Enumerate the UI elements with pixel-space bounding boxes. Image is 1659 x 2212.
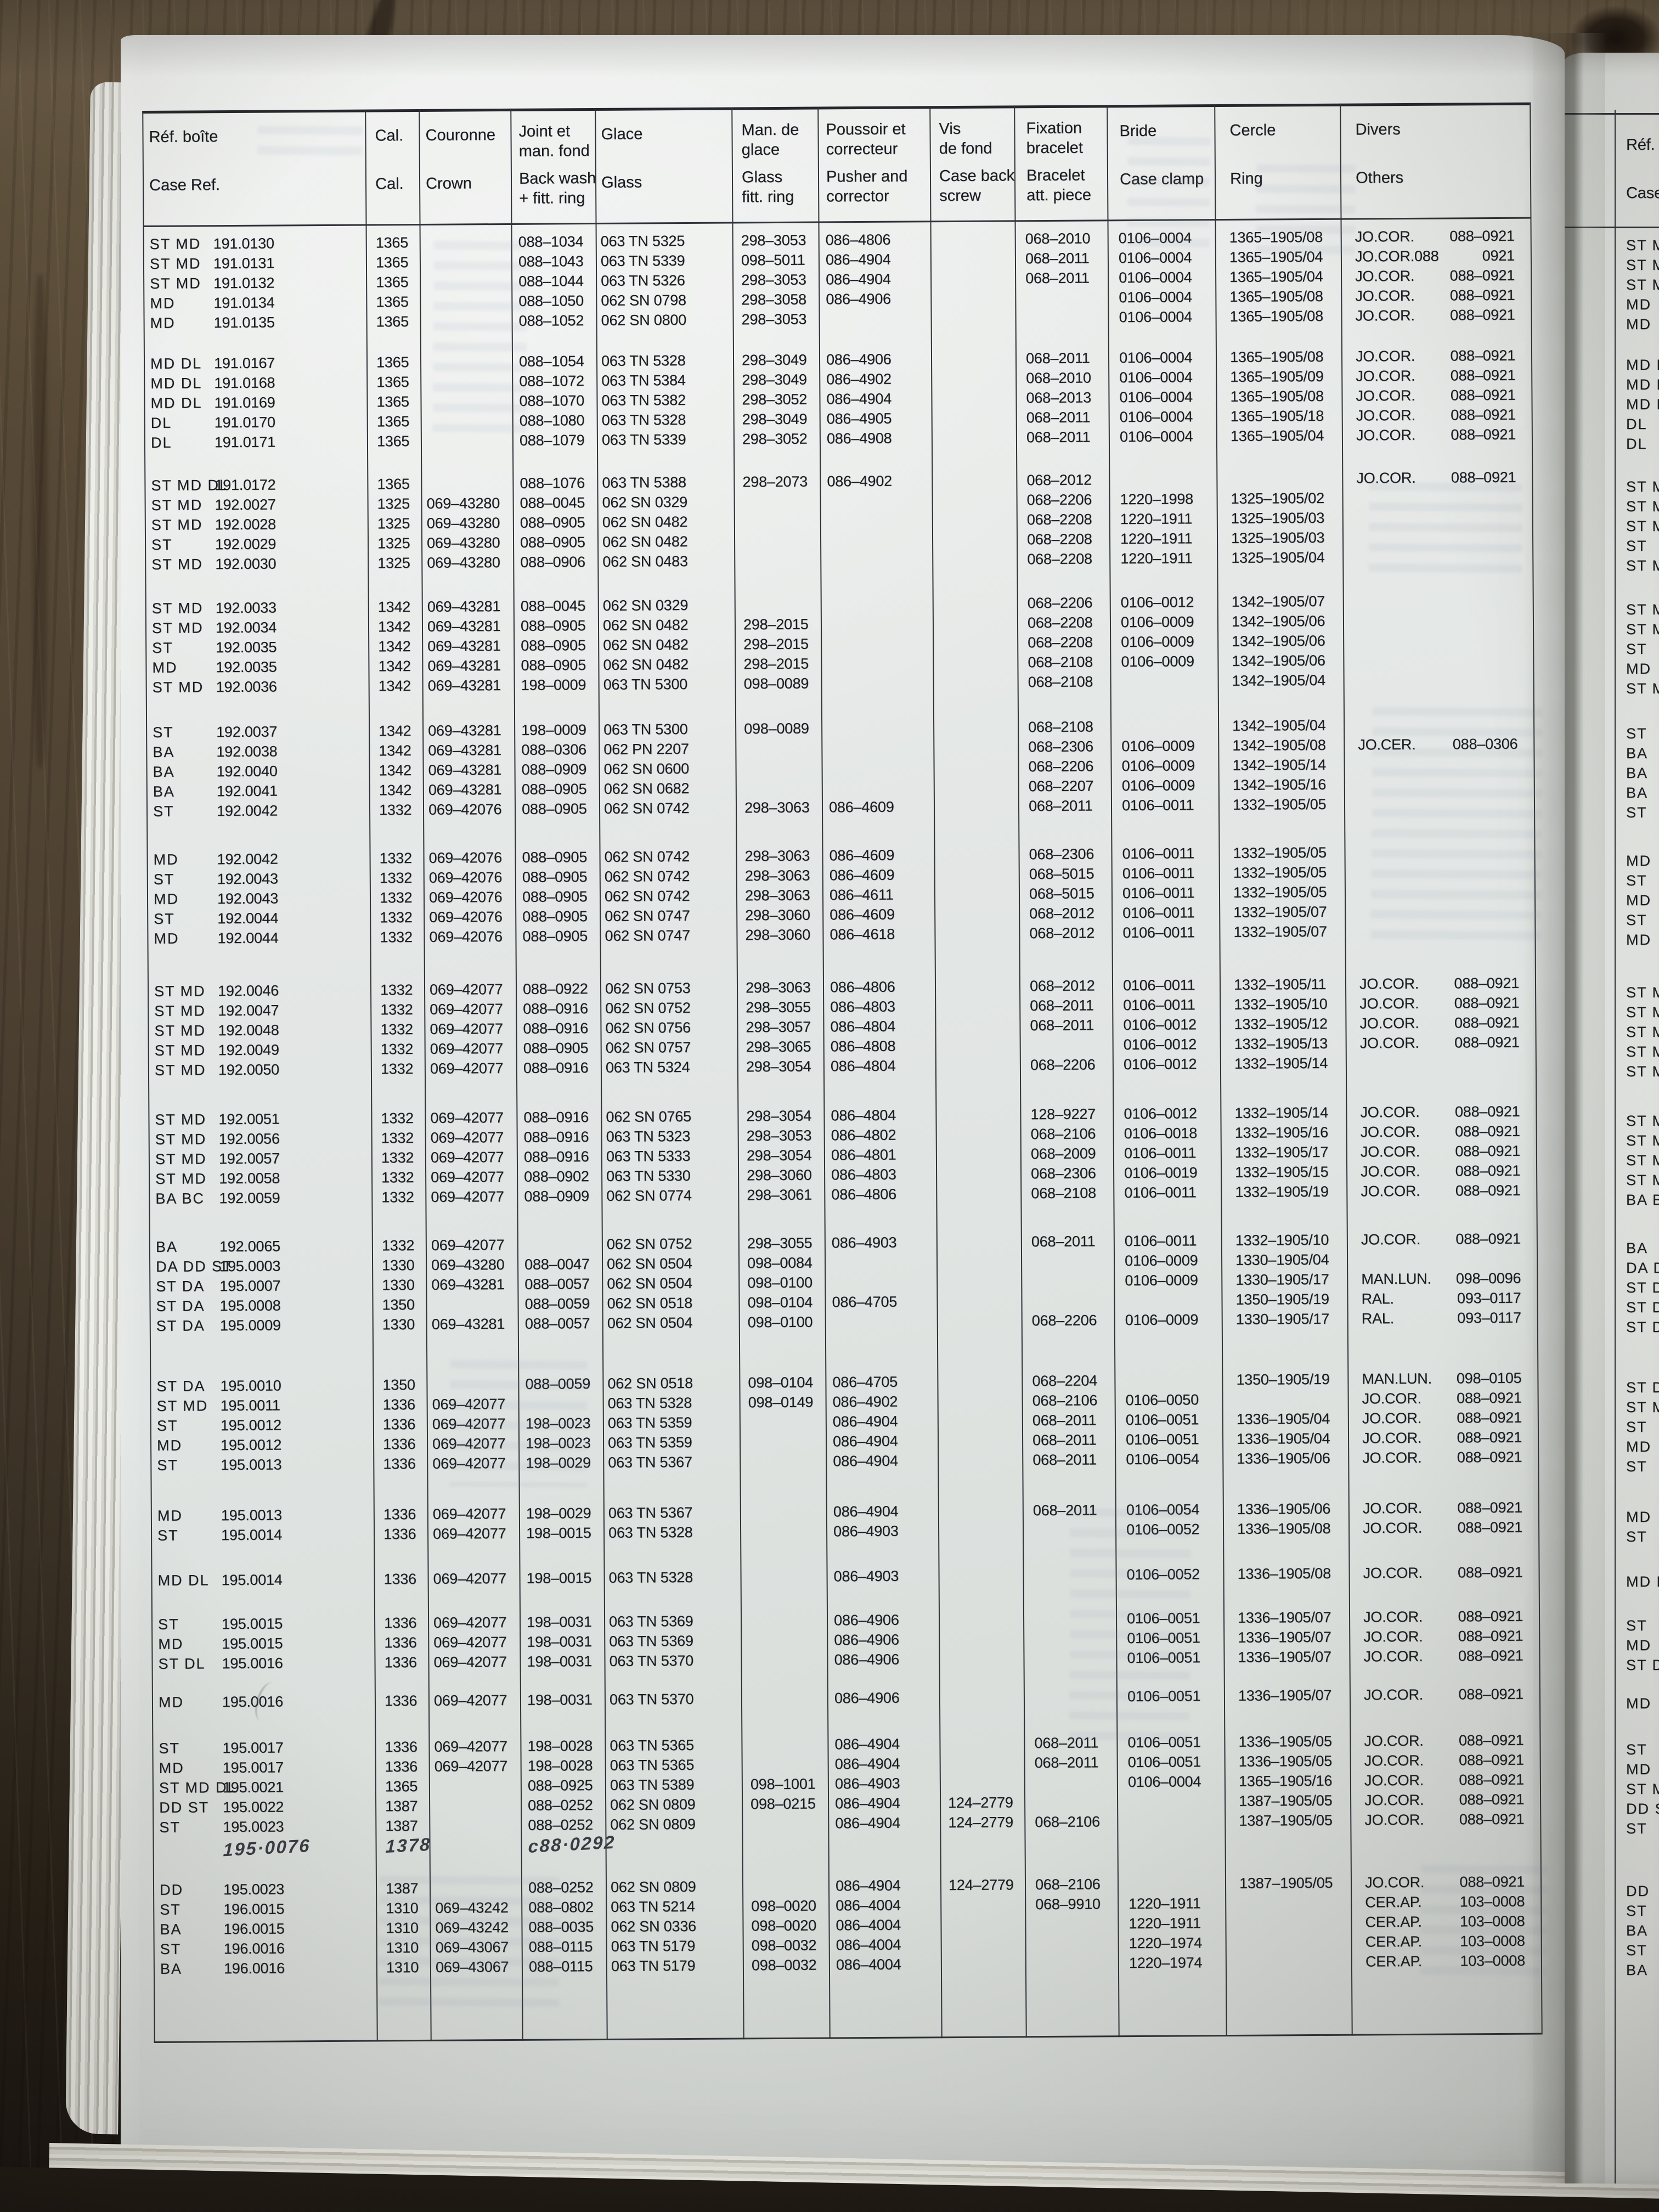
- row-group: MD DL191.01671365088–1054063 TN 5328298–…: [144, 346, 1532, 453]
- cell-cal: 1310: [386, 1957, 428, 1977]
- cell-backwash-ring: 088–0905: [522, 799, 597, 819]
- cell-backwash-ring: 198–0023: [526, 1413, 601, 1434]
- cell-glass: 063 TN 5370: [609, 1650, 738, 1671]
- cell-case-clamp: 0106–0012: [1121, 592, 1215, 612]
- next-page-row: ST MD: [1565, 600, 1659, 619]
- cell-cal: 1342: [378, 636, 420, 656]
- cell-case-ref: 191.0172: [215, 475, 363, 495]
- cell-cal: 1332: [381, 1128, 423, 1148]
- cell-divers-no: 088–0921: [1386, 1646, 1523, 1667]
- cell-backwash-ring: 088–1070: [519, 391, 595, 411]
- next-page-row: ST: [1565, 639, 1659, 659]
- row-group: ST MD191.01301365088–1034063 TN 5325298–…: [143, 226, 1531, 333]
- cell-backwash-ring: 088–1044: [518, 271, 594, 291]
- cell-crown: 069–43281: [427, 616, 512, 636]
- cell-ring: 1336–1905/05: [1239, 1751, 1348, 1771]
- row-group: STMDST DL: [1565, 1616, 1659, 1675]
- cell-case-ref: 192.0047: [218, 1000, 366, 1021]
- cell-glass: 062 SN 0482: [603, 654, 732, 674]
- row-group: ST MDST MDST MDST MDST MD: [1565, 983, 1659, 1081]
- cell-glass-fitt-ring: 298–3053: [741, 309, 817, 330]
- row-group: ST192.00371342069–43281198–0009063 TN 53…: [146, 714, 1534, 821]
- cell-crown: 069–42077: [431, 1235, 516, 1255]
- next-page-code: BA: [1626, 1921, 1648, 1940]
- cell-backwash-ring: 088–0905: [522, 867, 598, 887]
- cell-glass-fitt-ring: 298–3053: [747, 1125, 822, 1145]
- cell-bracelet-att: 068–2011: [1035, 1752, 1115, 1773]
- cell-cal: 1332: [381, 1148, 423, 1167]
- row-group: ST DA195.00101350088–0059062 SN 0518098–…: [150, 1368, 1538, 1475]
- cell-ring: 1325–1905/03: [1231, 528, 1341, 548]
- cell-case-clamp: 0106–0004: [1120, 407, 1214, 427]
- cell-cal: 1332: [380, 980, 422, 1000]
- row-group: MDST: [1565, 1507, 1659, 1547]
- cell-case-ref: 195.0022: [223, 1797, 371, 1818]
- next-page-row: ST MD: [1565, 1062, 1659, 1081]
- cell-ring: 1342–1905/06: [1232, 631, 1341, 651]
- cell-case-ref: 195.0013: [221, 1454, 369, 1475]
- cell-pusher: 086–4904: [833, 1411, 926, 1431]
- header-label: Divers: [1355, 120, 1400, 140]
- cell-pusher: 086–4902: [833, 1391, 926, 1412]
- cell-cal: 1365: [376, 372, 418, 392]
- cell-ring: 1387–1905/05: [1239, 1810, 1348, 1831]
- next-page-row: ST: [1565, 1901, 1659, 1921]
- cell-bracelet-att: 068–2206: [1030, 1054, 1110, 1075]
- cell-case-clamp: 0106–0012: [1124, 1034, 1218, 1054]
- cell-crown: 069–42077: [432, 1434, 517, 1454]
- cell-case-clamp: 1220–1974: [1129, 1933, 1223, 1953]
- next-page-row: ST MD: [1565, 275, 1659, 295]
- cell-glass-fitt-ring: 298–2015: [743, 634, 819, 654]
- cell-glass: 062 SN 0752: [607, 1233, 736, 1254]
- cell-glass: 063 TN 5179: [611, 1936, 741, 1956]
- next-page-row: ST: [1565, 724, 1659, 743]
- cell-glass-fitt-ring: 298–3060: [745, 905, 821, 926]
- cell-case-clamp: 0106–0009: [1121, 755, 1216, 776]
- cell-case-clamp: 0106–0011: [1125, 1231, 1219, 1251]
- cell-case-ref: 196.0015: [223, 1918, 371, 1939]
- cell-divers-no: 088–0306: [1380, 734, 1517, 755]
- cell-ring: 1342–1905/06: [1232, 611, 1341, 631]
- cell-backwash-ring: 198–0028: [527, 1736, 603, 1756]
- cell-case-ref: 192.0027: [215, 494, 363, 515]
- cell-backwash-ring: 198–0031: [527, 1632, 602, 1652]
- cell-ring: 1332–1905/05: [1233, 794, 1342, 815]
- next-page-row: ST: [1565, 1527, 1659, 1547]
- cell-crown: 069–42076: [428, 799, 513, 820]
- next-page-code: ST: [1626, 1740, 1647, 1759]
- next-page-row: ST MD: [1565, 1022, 1659, 1042]
- header-label: Case back: [939, 166, 1014, 186]
- wood-grain-streak: [33, 274, 47, 768]
- cell-divers-no: 088–0921: [1379, 405, 1516, 426]
- cell-pusher: 086–4903: [832, 1232, 925, 1252]
- cell-pusher: 086–4804: [831, 1056, 924, 1076]
- cell-backwash-ring: 088–0252: [528, 1877, 604, 1898]
- cell-case-back-screw: 124–2779: [949, 1875, 1023, 1895]
- next-page-code: MD: [1626, 851, 1651, 871]
- cell-backwash-ring: 088–1052: [518, 311, 594, 331]
- cell-bracelet-att: 068–2011: [1030, 995, 1110, 1015]
- header-label: fitt. ring: [742, 187, 794, 207]
- cell-backwash-ring: 088–0047: [524, 1254, 600, 1274]
- next-page-code: ST: [1626, 536, 1647, 556]
- next-page-code: MD DL: [1626, 355, 1659, 375]
- cell-backwash-ring: 088–0916: [523, 1107, 599, 1127]
- cell-divers-no: 093–0117: [1384, 1308, 1521, 1329]
- cell-divers-no: 088–0921: [1386, 1730, 1523, 1751]
- cell-crown: 069–43281: [428, 760, 512, 780]
- cell-case-ref: 192.0040: [216, 761, 364, 782]
- cell-backwash-ring: 088–1043: [518, 251, 594, 272]
- header-label: Glass: [601, 172, 642, 192]
- cell-backwash-ring: 088–0916: [523, 1018, 599, 1039]
- cell-ring: 1332–1905/17: [1235, 1142, 1345, 1163]
- cell-glass-fitt-ring: 298–3063: [745, 885, 821, 906]
- next-page-code: ST: [1626, 1527, 1647, 1547]
- cell-case-clamp: 0106–0011: [1124, 1143, 1218, 1163]
- next-page-code: MD: [1626, 659, 1651, 679]
- cell-ring: 1342–1905/04: [1232, 670, 1342, 691]
- cell-case-ref: 195.0021: [223, 1777, 371, 1798]
- next-page-code: ST DA: [1626, 1378, 1659, 1397]
- cell-crown: 069–43067: [436, 1957, 520, 1977]
- cell-crown: 069–43280: [427, 552, 511, 573]
- header-label: correcteur: [826, 139, 898, 160]
- next-page-code: DL: [1626, 434, 1647, 454]
- cell-crown: 069–42077: [433, 1568, 517, 1589]
- cell-pusher: 086–4903: [833, 1521, 927, 1541]
- cell-case-clamp: 0106–0011: [1122, 795, 1216, 815]
- cell-ring: 1365–1905/04: [1231, 426, 1340, 446]
- header-label: Case Ref.: [149, 175, 220, 195]
- cell-case-ref: 195.0009: [220, 1315, 368, 1336]
- cell-crown: 069–43281: [431, 1274, 516, 1295]
- cell-case-ref: 192.0042: [217, 800, 365, 821]
- cell-divers-no: 103–0008: [1388, 1951, 1525, 1972]
- cell-glass: 063 TN 5328: [602, 409, 731, 430]
- header-label: Glass: [742, 167, 782, 187]
- cell-crown: 069–43281: [428, 675, 512, 696]
- cell-glass: 063 TN 5179: [611, 1955, 741, 1976]
- cell-cal: 1336: [384, 1613, 426, 1633]
- cell-divers-no: 088–0921: [1386, 1684, 1523, 1705]
- cell-divers-no: 098–0096: [1384, 1268, 1521, 1289]
- cell-glass: 062 PN 2207: [603, 738, 733, 759]
- next-page-code: ST MD: [1626, 619, 1659, 639]
- header-label: glace: [742, 140, 780, 160]
- cell-backwash-ring: 088–0802: [528, 1897, 604, 1917]
- table-row: MD195.00161336069–42077198–0031063 TN 53…: [152, 1684, 1539, 1712]
- cell-pusher: 086–4903: [835, 1773, 928, 1793]
- next-page-code: ST MD: [1626, 679, 1659, 698]
- cell-case-ref: 192.0065: [219, 1236, 368, 1257]
- next-page-row: ST MD: [1565, 1150, 1659, 1170]
- cell-case-clamp: 0106–0018: [1124, 1123, 1218, 1143]
- row-group: MD195.00131336069–42077198–0029063 TN 53…: [151, 1498, 1538, 1545]
- cell-pusher: 086–4004: [836, 1934, 929, 1955]
- next-page-code: ST: [1626, 1901, 1647, 1921]
- cell-pusher: 086–4903: [833, 1566, 927, 1586]
- cell-crown: 069–42077: [432, 1394, 517, 1414]
- cell-case-clamp: 0106–0009: [1121, 612, 1215, 632]
- cell-glass-fitt-ring: 098–0100: [747, 1272, 823, 1293]
- cell-case-ref: 191.0135: [213, 312, 362, 333]
- cell-bracelet-att: 068–2208: [1027, 509, 1107, 529]
- next-page-rows: ST MDST MDST MDMDMDMD DLMD DLMD DLDLDLST…: [1565, 227, 1659, 1980]
- cell-divers-no: 088–0921: [1386, 1626, 1523, 1647]
- next-page-row: MD: [1565, 1437, 1659, 1457]
- next-page-row: ST: [1565, 1417, 1659, 1437]
- header-label: corrector: [826, 187, 889, 207]
- cell-backwash-ring: 198–0031: [527, 1690, 603, 1710]
- cell-backwash-ring: 088–0045: [521, 596, 596, 616]
- cell-backwash-ring: 088–0909: [524, 1186, 600, 1206]
- next-page-code: ST MD: [1626, 1042, 1659, 1062]
- cell-divers-no: 088–0921: [1379, 467, 1516, 488]
- cell-ring: 1336–1905/07: [1238, 1647, 1347, 1667]
- cell-backwash-ring: 088–0916: [524, 1127, 600, 1147]
- cell-cal: 1342: [378, 597, 420, 617]
- cell-ring: 1336–1905/05: [1238, 1731, 1348, 1752]
- next-page-row: MD: [1565, 659, 1659, 679]
- cell-case-ref: 195.0015: [222, 1613, 370, 1634]
- cell-backwash-ring: 088–0306: [521, 740, 597, 760]
- cell-case-ref: 195.0003: [219, 1256, 368, 1277]
- cell-glass: 063 TN 5369: [609, 1611, 738, 1631]
- row-group: MD195.00161336069–42077198–0031063 TN 53…: [152, 1684, 1539, 1712]
- cell-case-ref: 191.0130: [213, 233, 362, 254]
- cell-bracelet-att: 068–2011: [1034, 1733, 1114, 1753]
- next-page-row: ST: [1565, 1740, 1659, 1759]
- next-page-row: ST: [1565, 871, 1659, 890]
- cell-ring: 1365–1905/04: [1229, 247, 1339, 267]
- cell-case-ref: 191.0134: [213, 292, 362, 313]
- cell-backwash-ring: 088–0905: [521, 635, 596, 656]
- cell-glass: 062 SN 0800: [601, 309, 730, 330]
- cell-ring: 1365–1905/16: [1239, 1771, 1348, 1791]
- row-group: STMDST MD DLDD STST: [1565, 1740, 1659, 1858]
- cell-pusher: 086–4906: [834, 1688, 928, 1708]
- cell-bracelet-att: 068–2108: [1031, 1183, 1111, 1203]
- cell-cal: 1365: [376, 292, 417, 312]
- cell-backwash-ring: 088–0905: [520, 512, 596, 533]
- cell-cal: 1332: [380, 907, 421, 927]
- cell-ring: 1330–1905/17: [1235, 1269, 1345, 1290]
- row-group: ST MD192.00511332069–42077088–0916062 SN…: [148, 1102, 1536, 1209]
- cell-divers-no: 088–0921: [1385, 1498, 1522, 1519]
- cell-case-ref: 192.0041: [217, 781, 365, 802]
- next-page-row: ST: [1565, 910, 1659, 930]
- cell-ring: 1325–1905/03: [1231, 508, 1341, 528]
- cell-glass: 062 SN 0518: [607, 1373, 737, 1393]
- cell-ring: 1332–1905/16: [1235, 1122, 1345, 1143]
- cell-glass: 063 TN 5367: [608, 1502, 738, 1522]
- next-page-code: ST: [1626, 639, 1647, 659]
- next-page-code: DD ST: [1626, 1799, 1659, 1819]
- cell-bracelet-att: 068–2011: [1030, 1015, 1110, 1035]
- next-page-code: MD: [1626, 1437, 1651, 1457]
- cell-backwash-ring: 088–0115: [529, 1937, 605, 1957]
- cell-case-ref: 196.0016: [224, 1958, 372, 1979]
- cell-case-clamp: 0106–0011: [1122, 843, 1216, 864]
- cell-backwash-ring: 088–1034: [518, 232, 594, 252]
- cell-cal: 1365: [376, 252, 417, 272]
- cell-ring: 1342–1905/07: [1232, 591, 1341, 612]
- cell-bracelet-att: 068–2206: [1028, 592, 1108, 613]
- next-page-code: ST: [1626, 803, 1647, 822]
- cell-cal: 1336: [383, 1504, 425, 1524]
- cell-pusher: 086–4906: [826, 349, 919, 369]
- cell-case-clamp: 0106–0004: [1128, 1771, 1222, 1792]
- next-page-row: ST MD: [1565, 1131, 1659, 1150]
- cell-bracelet-att: 068–2013: [1026, 387, 1106, 408]
- next-page-code: ST MD DL: [1626, 477, 1659, 496]
- cell-glass-fitt-ring: 298–3049: [742, 370, 817, 390]
- cell-backwash-ring: 088–0905: [521, 616, 596, 636]
- next-page-row: BA BC: [1565, 1190, 1659, 1210]
- row-group: MD DL195.00141336069–42077198–0015063 TN…: [151, 1562, 1538, 1590]
- cell-backwash-ring: 088–0905: [520, 532, 596, 552]
- cell-cal: 1350: [382, 1375, 424, 1395]
- cell-crown: 069–42077: [434, 1736, 518, 1757]
- cell-ring: 1332–1905/12: [1234, 1014, 1344, 1034]
- cell-glass-fitt-ring: 098–0020: [751, 1915, 827, 1936]
- cell-glass-fitt-ring: 298–3054: [746, 1105, 822, 1126]
- cell-case-ref: 195.0015: [222, 1633, 370, 1654]
- cell-crown: 069–42077: [433, 1612, 518, 1633]
- cell-bracelet-att: 068–2306: [1031, 1163, 1111, 1183]
- cell-backwash-ring: 088–0902: [524, 1166, 600, 1187]
- cell-glass-fitt-ring: 098–0032: [752, 1935, 827, 1955]
- cell-ring: 1365–1905/09: [1230, 366, 1340, 387]
- cell-cal: 1332: [381, 1167, 423, 1187]
- cell-glass: 063 TN 5300: [603, 674, 733, 694]
- cell-case-ref: 191.0170: [215, 412, 363, 433]
- cell-case-ref: 192.0059: [219, 1188, 367, 1209]
- cell-pusher: 086–4611: [830, 884, 923, 905]
- cell-ring: 1342–1905/16: [1233, 775, 1342, 795]
- cell-ring: 1350–1905/19: [1235, 1289, 1345, 1310]
- next-page-code: ST DA: [1626, 1297, 1659, 1317]
- cell-divers-no: 088–0921: [1379, 425, 1516, 445]
- cell-glass: 062 SN 0329: [602, 492, 732, 512]
- cell-glass-fitt-ring: 298–3049: [742, 350, 817, 370]
- next-page-row: ST MD: [1565, 619, 1659, 639]
- cell-glass-fitt-ring: 298–3054: [747, 1145, 822, 1165]
- next-page-row: BA: [1565, 1238, 1659, 1258]
- cell-ring: 1336–1905/08: [1237, 1564, 1347, 1584]
- cell-case-clamp: 0106–0004: [1119, 247, 1213, 268]
- cell-cal: 1350: [382, 1295, 424, 1314]
- cell-bracelet-att: 068–2012: [1030, 975, 1110, 996]
- cell-divers-no: 088–0921: [1386, 1606, 1523, 1627]
- cell-backwash-ring: 088–0115: [529, 1956, 605, 1977]
- header-label: Pusher and: [826, 167, 908, 187]
- cell-ring: 1336–1905/06: [1237, 1499, 1347, 1519]
- cell-case-ref: 195.0017: [223, 1757, 371, 1778]
- cell-bracelet-att: 068–2108: [1028, 652, 1108, 672]
- cell-bracelet-att: 068–2306: [1029, 844, 1109, 864]
- cell-case-ref: 192.0034: [216, 617, 364, 638]
- next-page-code: MD: [1626, 295, 1651, 314]
- cell-bracelet-att: 068–2106: [1035, 1874, 1115, 1894]
- next-page-row: ST: [1565, 1940, 1659, 1960]
- cell-backwash-ring: 088–0252: [528, 1815, 603, 1835]
- header-label: Cal.: [375, 126, 403, 145]
- cell-backwash-ring: 198–0029: [526, 1453, 601, 1473]
- cell-glass-fitt-ring: 298–3055: [746, 997, 821, 1018]
- cell-glass: 062 SN 0747: [605, 925, 734, 945]
- header-label: screw: [939, 186, 981, 206]
- cell-divers-no: 088–0921: [1384, 1229, 1521, 1250]
- cell-glass-fitt-ring: 298–3060: [747, 1165, 822, 1185]
- cell-bracelet-att: 068–2206: [1026, 489, 1107, 510]
- cell-case-back-screw: 124–2779: [948, 1792, 1023, 1813]
- cell-crown: 069–42077: [435, 1756, 519, 1776]
- cell-cal: 1310: [386, 1918, 427, 1938]
- cell-glass-fitt-ring: 298–3063: [746, 978, 821, 998]
- next-page-code: BA: [1626, 1238, 1648, 1258]
- header-label: Bride: [1119, 121, 1156, 141]
- cell-glass-fitt-ring: 298–3065: [746, 1036, 822, 1057]
- cell-divers-no: 088–0921: [1382, 993, 1519, 1014]
- cell-ring: 1325–1905/04: [1231, 548, 1341, 568]
- cell-cal: 1365: [377, 411, 419, 431]
- cell-bracelet-att: 068–2009: [1031, 1143, 1111, 1164]
- row-group: ST MDST MDST MDMDMD: [1565, 235, 1659, 334]
- cell-pusher: 086–4004: [836, 1915, 929, 1935]
- cell-pusher: 086–4802: [831, 1125, 924, 1145]
- cell-divers-no: 098–0105: [1384, 1368, 1521, 1389]
- cell-backwash-ring: 198–0031: [527, 1612, 602, 1632]
- cell-case-ref: 192.0028: [215, 514, 363, 535]
- next-page-row: MD: [1565, 1507, 1659, 1527]
- cell-backwash-ring: 088–0905: [522, 906, 598, 927]
- cell-crown: 069–43281: [427, 636, 512, 656]
- cell-case-ref: 192.0051: [218, 1109, 366, 1130]
- cell-case-clamp: 0106–0011: [1122, 883, 1217, 903]
- next-page-code: BA: [1626, 763, 1648, 783]
- cell-case-clamp: 0106–0012: [1124, 1103, 1218, 1124]
- cell-glass: 062 SN 0809: [611, 1876, 740, 1897]
- cell-pusher: 086–4902: [827, 471, 920, 491]
- cell-pusher: 086–4004: [836, 1895, 929, 1915]
- next-page-code: ST MD: [1626, 983, 1659, 1002]
- cell-case-clamp: 0106–0009: [1121, 651, 1215, 672]
- cell-cal: 1332: [380, 888, 421, 907]
- cell-case-clamp: 0106–0012: [1123, 1014, 1217, 1035]
- cell-bracelet-att: 068–2011: [1025, 268, 1105, 288]
- cell-glass: 062 SN 0742: [605, 885, 734, 906]
- cell-divers-no: 088–0921: [1387, 1809, 1524, 1830]
- next-page-row: ST MD: [1565, 1170, 1659, 1190]
- cell-pusher: 086–4808: [831, 1036, 924, 1056]
- cell-bracelet-att: 068–2011: [1033, 1500, 1113, 1520]
- next-page-row: ST DA: [1565, 1378, 1659, 1397]
- cell-divers-no: 103–0008: [1387, 1911, 1525, 1932]
- next-page-row: MD: [1565, 890, 1659, 910]
- next-page-code: ST DL: [1626, 1655, 1659, 1675]
- cell-glass-fitt-ring: 098–1001: [751, 1774, 826, 1794]
- cell-backwash-ring: 088–1079: [520, 430, 595, 450]
- cell-backwash-ring: 088–0905: [522, 847, 597, 867]
- next-page-row: MD: [1565, 930, 1659, 950]
- cell-glass: 063 TN 5365: [610, 1754, 740, 1775]
- cell-backwash-ring: 088–0035: [528, 1917, 604, 1937]
- row-group: ST MD DLST MDST MDSTST MD: [1565, 477, 1659, 575]
